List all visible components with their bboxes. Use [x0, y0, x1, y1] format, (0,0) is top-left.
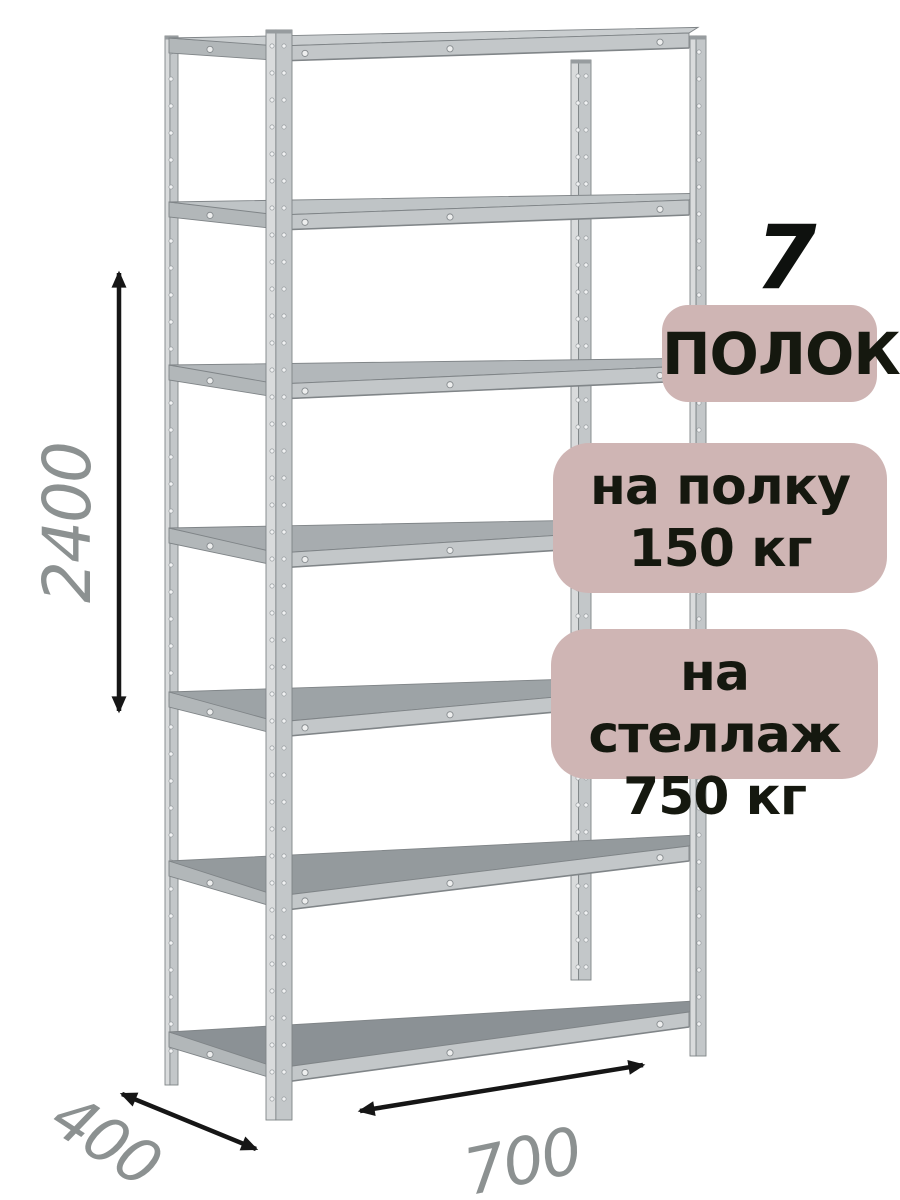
post-hole — [270, 908, 274, 912]
post-hole — [270, 152, 274, 156]
post-hole — [282, 773, 286, 777]
post-hole — [282, 287, 286, 291]
post-hole — [282, 962, 286, 966]
post-hole — [270, 854, 274, 858]
post-hole — [270, 611, 274, 615]
post-hole — [270, 530, 274, 534]
post-hole — [584, 74, 588, 78]
rivet — [302, 898, 308, 904]
post-hole — [270, 1097, 274, 1101]
rivet — [302, 50, 308, 56]
post-hole — [270, 368, 274, 372]
rivet — [207, 709, 213, 715]
post-hole — [584, 128, 588, 132]
post-hole — [270, 827, 274, 831]
front-right-post-cap — [690, 36, 706, 40]
post-hole — [270, 125, 274, 129]
rivet — [657, 39, 663, 45]
post-hole — [282, 692, 286, 696]
post-hole — [697, 833, 701, 837]
rivet — [447, 880, 453, 886]
post-hole — [282, 179, 286, 183]
rivet — [207, 543, 213, 549]
post-hole — [282, 557, 286, 561]
post-hole — [576, 74, 580, 78]
post-hole — [697, 995, 701, 999]
post-hole — [282, 908, 286, 912]
post-hole — [169, 995, 173, 999]
rivet — [302, 1069, 308, 1075]
shelf-count: 7 — [733, 214, 839, 302]
post-hole — [697, 968, 701, 972]
post-hole — [697, 104, 701, 108]
post-hole — [697, 212, 701, 216]
post-hole — [576, 155, 580, 159]
post-hole — [282, 611, 286, 615]
post-hole — [697, 77, 701, 81]
front-left-post — [276, 30, 292, 1120]
post-hole — [576, 425, 580, 429]
post-hole — [270, 287, 274, 291]
post-hole — [282, 638, 286, 642]
rivet — [657, 206, 663, 212]
back-right-post-cap — [571, 60, 591, 64]
rivet — [207, 46, 213, 52]
post-hole — [282, 71, 286, 75]
post-hole — [282, 584, 286, 588]
post-hole — [270, 341, 274, 345]
post-hole — [169, 752, 173, 756]
post-hole — [584, 236, 588, 240]
post-hole — [576, 830, 580, 834]
post-hole — [576, 938, 580, 942]
depth-label: 400 — [39, 1079, 173, 1200]
post-hole — [270, 881, 274, 885]
per-shelf-load-line2: 150 кг — [553, 518, 887, 580]
width-label: 700 — [458, 1114, 587, 1200]
width-dimension: 700 — [360, 1065, 643, 1200]
post-hole — [697, 131, 701, 135]
per-shelf-load-badge: на полку 150 кг — [553, 443, 887, 593]
post-hole — [270, 449, 274, 453]
post-hole — [169, 266, 173, 270]
rivet — [302, 219, 308, 225]
post-hole — [270, 584, 274, 588]
post-hole — [169, 833, 173, 837]
post-hole — [270, 314, 274, 318]
post-hole — [584, 614, 588, 618]
rivet — [447, 46, 453, 52]
post-hole — [270, 44, 274, 48]
post-hole — [282, 827, 286, 831]
per-rack-load-line2: 750 кг — [551, 766, 878, 828]
post-hole — [169, 347, 173, 351]
post-hole — [282, 746, 286, 750]
post-hole — [584, 965, 588, 969]
post-hole — [282, 152, 286, 156]
post-hole — [270, 800, 274, 804]
post-hole — [282, 1016, 286, 1020]
rivet — [207, 378, 213, 384]
rivet — [447, 214, 453, 220]
post-hole — [282, 530, 286, 534]
width-arrow — [360, 1065, 643, 1111]
post-hole — [270, 503, 274, 507]
post-hole — [282, 449, 286, 453]
post-hole — [282, 989, 286, 993]
post-hole — [282, 1097, 286, 1101]
post-hole — [697, 293, 701, 297]
rivet — [207, 212, 213, 218]
post-hole — [584, 317, 588, 321]
post-hole — [169, 887, 173, 891]
shelf-count-badge: ПОЛОК — [662, 305, 877, 402]
post-hole — [697, 887, 701, 891]
post-hole — [576, 263, 580, 267]
post-hole — [697, 428, 701, 432]
post-hole — [169, 158, 173, 162]
post-hole — [697, 941, 701, 945]
post-hole — [169, 482, 173, 486]
post-hole — [270, 557, 274, 561]
post-hole — [169, 968, 173, 972]
post-hole — [270, 962, 274, 966]
post-hole — [282, 314, 286, 318]
shelving-rack-illustration: 2400 400 700 — [0, 0, 900, 1200]
post-hole — [282, 800, 286, 804]
post-hole — [169, 563, 173, 567]
front-left-post-cap — [266, 30, 292, 34]
post-hole — [270, 1070, 274, 1074]
post-hole — [169, 806, 173, 810]
post-hole — [576, 911, 580, 915]
per-rack-load-line1: на стеллаж — [551, 642, 878, 766]
post-hole — [270, 260, 274, 264]
post-hole — [584, 101, 588, 105]
post-hole — [282, 98, 286, 102]
post-hole — [270, 206, 274, 210]
post-hole — [270, 476, 274, 480]
post-hole — [697, 185, 701, 189]
post-hole — [282, 935, 286, 939]
post-hole — [270, 179, 274, 183]
post-hole — [282, 1043, 286, 1047]
post-hole — [270, 773, 274, 777]
back-left-post — [170, 36, 178, 1085]
post-hole — [169, 1049, 173, 1053]
post-hole — [270, 665, 274, 669]
post-hole — [270, 98, 274, 102]
post-hole — [169, 428, 173, 432]
front-left-post-edge — [266, 30, 276, 1120]
post-hole — [697, 239, 701, 243]
post-hole — [697, 50, 701, 54]
post-hole — [270, 1043, 274, 1047]
post-hole — [584, 182, 588, 186]
post-hole — [697, 266, 701, 270]
post-hole — [576, 101, 580, 105]
post-hole — [282, 206, 286, 210]
rivet — [207, 1051, 213, 1057]
rivet — [657, 855, 663, 861]
post-hole — [270, 1016, 274, 1020]
post-hole — [282, 233, 286, 237]
post-hole — [270, 233, 274, 237]
post-hole — [270, 71, 274, 75]
rivet — [447, 712, 453, 718]
post-hole — [169, 644, 173, 648]
post-hole — [270, 395, 274, 399]
post-hole — [270, 935, 274, 939]
post-hole — [270, 989, 274, 993]
post-hole — [584, 425, 588, 429]
post-hole — [584, 263, 588, 267]
rivet — [657, 1021, 663, 1027]
post-hole — [270, 422, 274, 426]
post-hole — [584, 344, 588, 348]
post-hole — [576, 884, 580, 888]
post-hole — [270, 692, 274, 696]
post-hole — [270, 719, 274, 723]
product-image: 2400 400 700 7 ПОЛОК на полку 150 кг на … — [0, 0, 900, 1200]
post-hole — [169, 131, 173, 135]
post-hole — [282, 422, 286, 426]
post-hole — [576, 398, 580, 402]
post-hole — [584, 911, 588, 915]
post-hole — [697, 914, 701, 918]
rivet — [302, 725, 308, 731]
post-hole — [584, 155, 588, 159]
post-hole — [584, 398, 588, 402]
post-hole — [282, 476, 286, 480]
rivet — [302, 556, 308, 562]
post-hole — [169, 590, 173, 594]
post-hole — [584, 884, 588, 888]
post-hole — [282, 881, 286, 885]
post-hole — [282, 503, 286, 507]
post-hole — [282, 719, 286, 723]
post-hole — [697, 860, 701, 864]
post-hole — [576, 236, 580, 240]
post-hole — [576, 290, 580, 294]
post-hole — [576, 614, 580, 618]
post-hole — [169, 185, 173, 189]
post-hole — [169, 725, 173, 729]
post-hole — [270, 638, 274, 642]
post-hole — [169, 293, 173, 297]
post-hole — [282, 260, 286, 264]
post-hole — [282, 854, 286, 858]
post-hole — [282, 665, 286, 669]
post-hole — [169, 1022, 173, 1026]
post-hole — [169, 239, 173, 243]
post-hole — [169, 104, 173, 108]
depth-dimension: 400 — [39, 1079, 256, 1200]
per-rack-load-badge: на стеллаж 750 кг — [551, 629, 878, 779]
post-hole — [282, 341, 286, 345]
rivet — [447, 547, 453, 553]
post-hole — [282, 44, 286, 48]
rivet — [302, 388, 308, 394]
post-hole — [584, 938, 588, 942]
post-hole — [282, 395, 286, 399]
post-hole — [697, 158, 701, 162]
post-hole — [576, 317, 580, 321]
post-hole — [282, 125, 286, 129]
height-dimension: 2400 — [29, 273, 119, 711]
post-hole — [584, 830, 588, 834]
post-hole — [169, 779, 173, 783]
post-hole — [169, 320, 173, 324]
post-hole — [169, 455, 173, 459]
rivet — [207, 880, 213, 886]
post-hole — [169, 914, 173, 918]
post-hole — [697, 1022, 701, 1026]
post-hole — [169, 401, 173, 405]
post-hole — [270, 746, 274, 750]
post-hole — [282, 1070, 286, 1074]
shelf-count-badge-label: ПОЛОК — [662, 320, 900, 388]
post-hole — [576, 182, 580, 186]
post-hole — [584, 290, 588, 294]
per-shelf-load-line1: на полку — [553, 456, 887, 518]
rivet — [447, 382, 453, 388]
post-hole — [169, 941, 173, 945]
height-label: 2400 — [29, 443, 106, 603]
post-hole — [576, 128, 580, 132]
post-hole — [169, 77, 173, 81]
back-left-post-edge — [165, 36, 170, 1085]
post-hole — [169, 671, 173, 675]
rivet — [447, 1050, 453, 1056]
post-hole — [169, 617, 173, 621]
post-hole — [697, 617, 701, 621]
post-hole — [576, 344, 580, 348]
post-hole — [169, 509, 173, 513]
post-hole — [282, 368, 286, 372]
post-hole — [576, 965, 580, 969]
